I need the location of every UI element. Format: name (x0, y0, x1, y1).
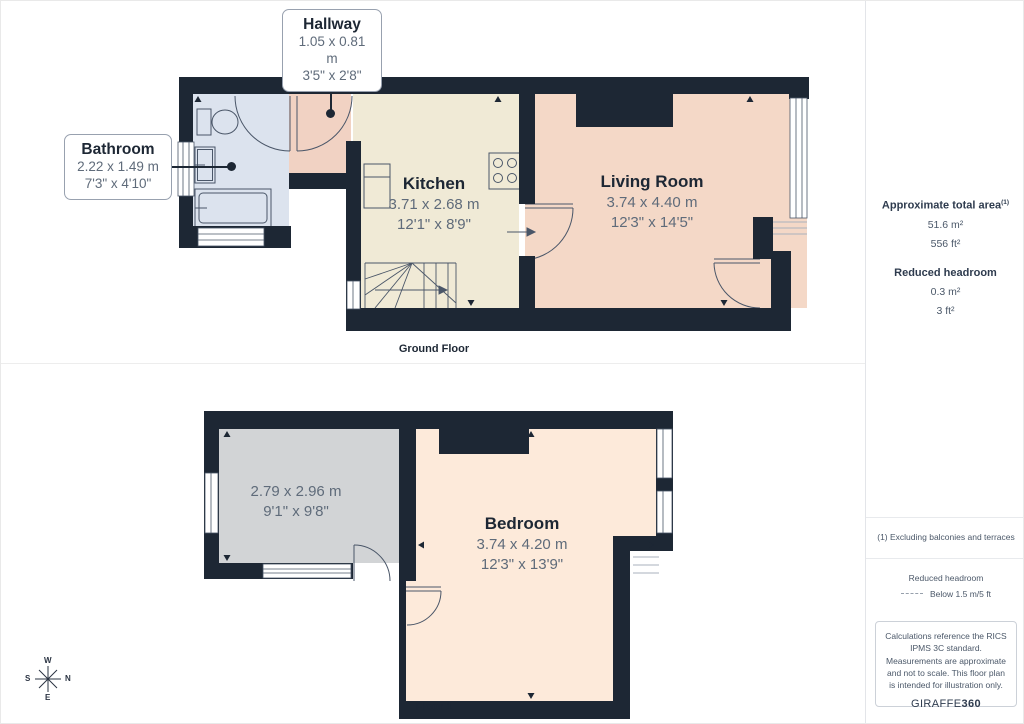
hallway-callout: Hallway 1.05 x 0.81 m 3'5" x 2'8" (282, 9, 382, 92)
floor-section-divider (1, 363, 865, 364)
area-footnote: (1) Excluding balconies and terraces (872, 532, 1020, 544)
bathroom-callout-metric: 2.22 x 1.49 m (75, 159, 161, 176)
hallway-callout-metric: 1.05 x 0.81 m (293, 34, 371, 68)
dashed-line-icon (901, 593, 923, 594)
total-area-metric: 51.6 m² (866, 219, 1024, 231)
kitchen-title: Kitchen (344, 173, 524, 195)
brand-name: GIRAFFE (911, 698, 961, 710)
bedroom-imperial: 12'3" x 13'9" (432, 555, 612, 575)
total-area-footnote-marker: (1) (1001, 199, 1009, 206)
floor1-room-label: 2.79 x 2.96 m 9'1" x 9'8" (206, 482, 386, 522)
floorplan-page: W S N E Hallway 1.05 x 0.81 m 3'5" x 2'8… (0, 0, 1024, 724)
hallway-callout-title: Hallway (293, 15, 371, 34)
hallway-floor (289, 94, 351, 173)
living-room-label: Living Room 3.74 x 4.40 m 12'3" x 14'5" (562, 171, 742, 233)
floor1-room-metric: 2.79 x 2.96 m (206, 482, 386, 502)
hallway-leader-dot (326, 109, 335, 118)
compass-south-label: S (25, 674, 30, 683)
brand-logo: GIRAFFE360 (883, 698, 1009, 710)
living-room-imperial: 12'3" x 14'5" (562, 213, 742, 233)
hallway-callout-imperial: 3'5" x 2'8" (293, 68, 371, 85)
bedroom-label: Bedroom 3.74 x 4.20 m 12'3" x 13'9" (432, 513, 612, 575)
kitchen-imperial: 12'1" x 8'9" (344, 215, 524, 235)
area-summary: Approximate total area(1) 51.6 m² 556 ft… (866, 199, 1024, 317)
sidebar-divider-2 (866, 558, 1024, 559)
headroom-imperial: 3 ft² (866, 305, 1024, 317)
compass-icon (35, 666, 61, 692)
living-room-title: Living Room (562, 171, 742, 193)
disclaimer-text: Calculations reference the RICS IPMS 3C … (883, 630, 1009, 692)
compass-north-label: N (65, 674, 71, 683)
living-room-metric: 3.74 x 4.40 m (562, 193, 742, 213)
headroom-metric: 0.3 m² (866, 286, 1024, 298)
bedroom-metric: 3.74 x 4.20 m (432, 535, 612, 555)
kitchen-label: Kitchen 3.71 x 2.68 m 12'1" x 8'9" (344, 173, 524, 235)
bathroom-callout-imperial: 7'3" x 4'10" (75, 176, 161, 193)
total-area-imperial: 556 ft² (866, 238, 1024, 250)
compass-west-label: W (44, 656, 52, 665)
bathroom-callout-title: Bathroom (75, 140, 161, 159)
bathroom-leader-line (171, 166, 228, 168)
info-sidebar: Approximate total area(1) 51.6 m² 556 ft… (865, 1, 1024, 724)
headroom-legend-label: Reduced headroom (872, 573, 1020, 585)
disclaimer-box: Calculations reference the RICS IPMS 3C … (875, 621, 1017, 707)
brand-suffix: 360 (961, 698, 981, 710)
bedroom-title: Bedroom (432, 513, 612, 535)
bathroom-floor (193, 94, 289, 230)
compass-east-label: E (45, 693, 50, 702)
headroom-legend-value: Below 1.5 m/5 ft (930, 589, 991, 599)
floor1-room-imperial: 9'1" x 9'8" (206, 502, 386, 522)
bathroom-callout: Bathroom 2.22 x 1.49 m 7'3" x 4'10" (64, 134, 172, 200)
ground-floor-caption: Ground Floor (284, 343, 584, 355)
headroom-legend-row: Below 1.5 m/5 ft (872, 589, 1020, 601)
first-floor-caption: Floor 1 (284, 701, 584, 713)
kitchen-metric: 3.71 x 2.68 m (344, 195, 524, 215)
bathroom-leader-dot (227, 162, 236, 171)
sidebar-divider-1 (866, 517, 1024, 518)
total-area-label: Approximate total area(1) (866, 199, 1024, 212)
headroom-label: Reduced headroom (866, 267, 1024, 279)
